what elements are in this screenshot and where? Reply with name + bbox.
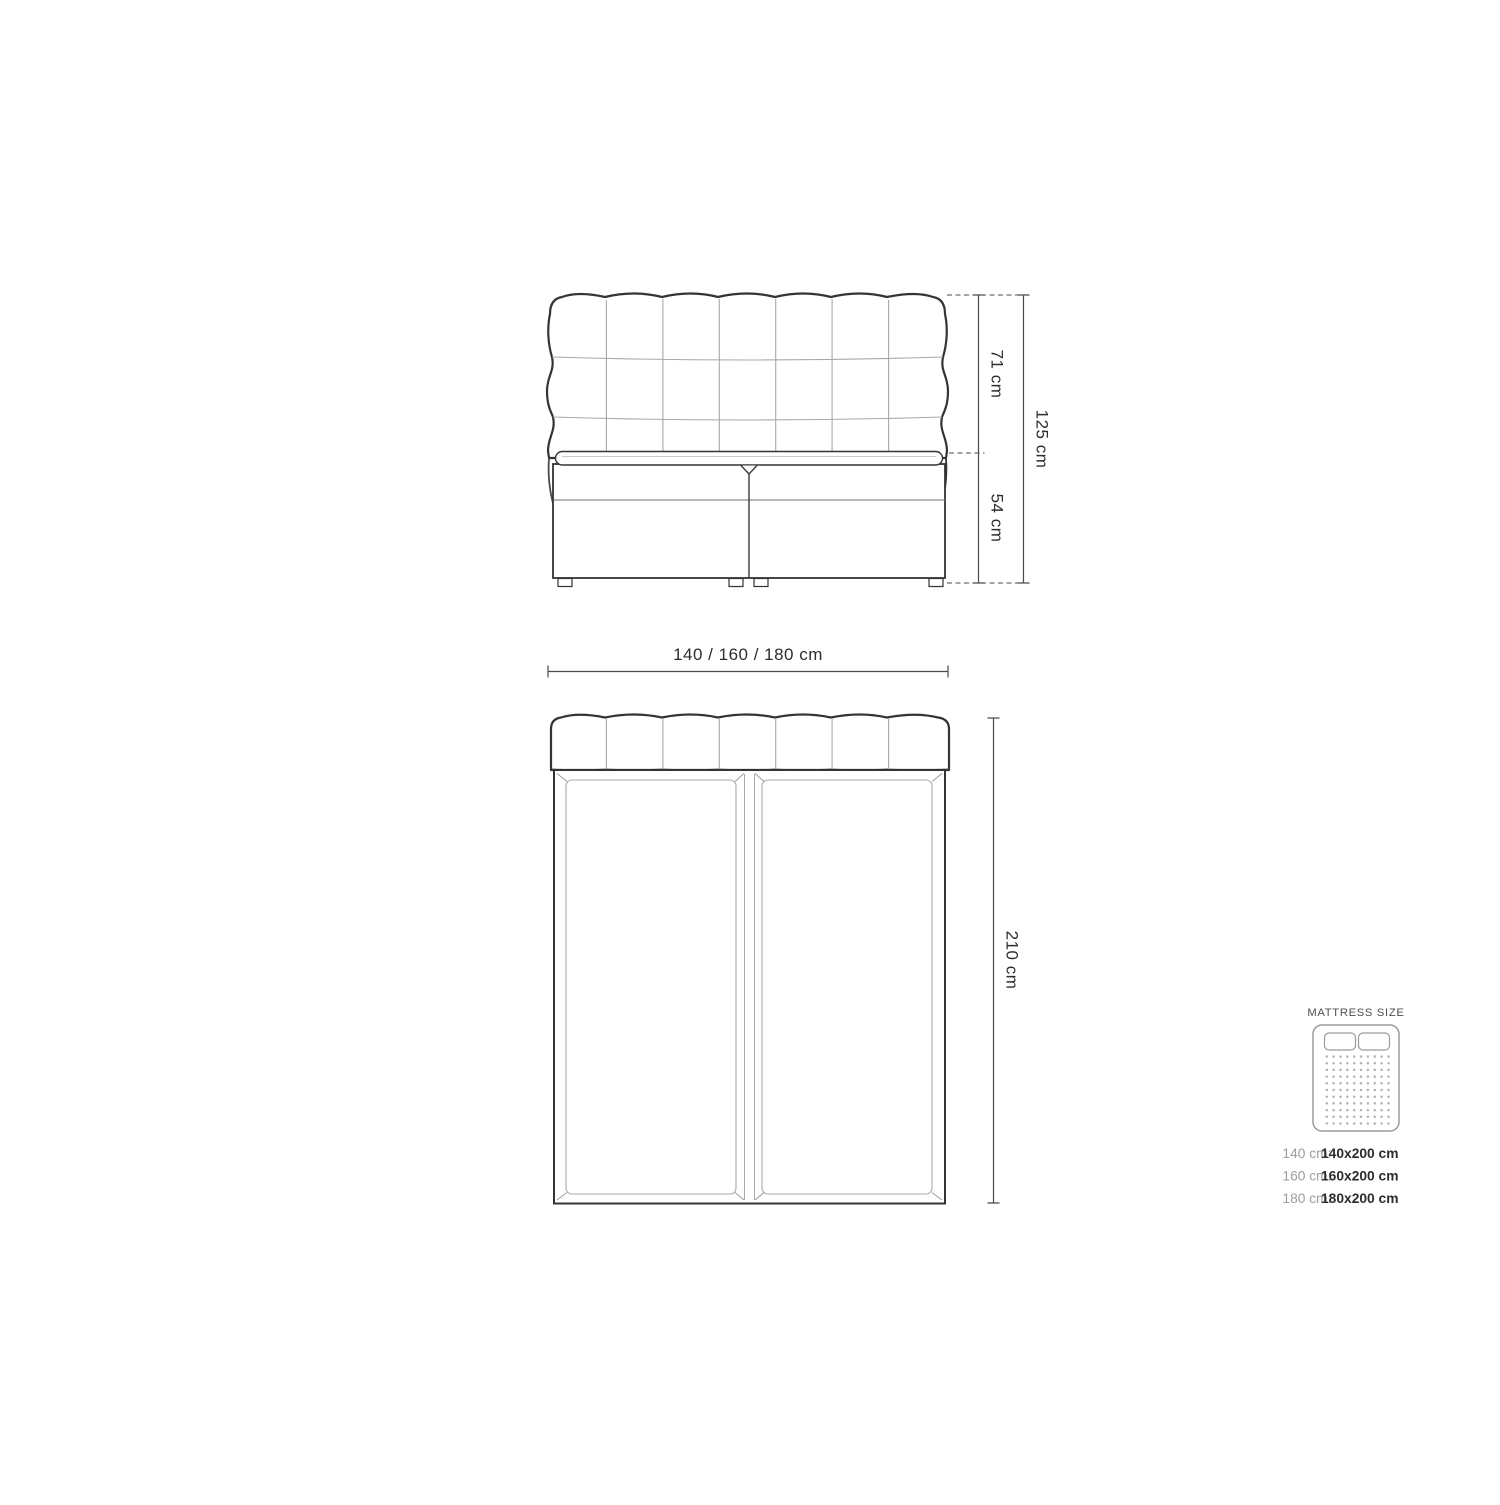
- total-height-label: 125 cm: [1033, 410, 1052, 469]
- front-height-dimensions: 71 cm 54 cm 125 cm: [947, 295, 1052, 583]
- legend-title: MATTRESS SIZE: [1307, 1007, 1404, 1019]
- mattress-icon-pillow-right: [1359, 1033, 1390, 1050]
- base-height-label: 54 cm: [988, 494, 1007, 543]
- legend-size-value: 140x200 cm: [1321, 1146, 1399, 1161]
- mattress-icon-pillow-left: [1325, 1033, 1356, 1050]
- bed-dimension-diagram: 71 cm 54 cm 125 cm 140 / 160 / 180 cm: [0, 0, 1500, 1500]
- bed-feet: [558, 579, 943, 587]
- bed-frame-top: [554, 770, 945, 1204]
- mattress-size-legend: MATTRESS SIZE 140 cm: 140x200 cm 160 cm:…: [1282, 1007, 1404, 1206]
- legend-size-value: 160x200 cm: [1321, 1169, 1399, 1184]
- width-label: 140 / 160 / 180 cm: [673, 645, 823, 664]
- legend-size-value: 180x200 cm: [1321, 1191, 1399, 1206]
- headboard-front-outline: [547, 294, 948, 459]
- front-view: [547, 294, 948, 587]
- length-dimension: 210 cm: [988, 718, 1022, 1203]
- diagram-svg: 71 cm 54 cm 125 cm 140 / 160 / 180 cm: [0, 0, 1500, 1500]
- width-dimension: 140 / 160 / 180 cm: [548, 645, 948, 678]
- mattress-band-front: [556, 452, 943, 466]
- headboard-height-label: 71 cm: [988, 350, 1007, 399]
- legend-size-rows: 140 cm: 140x200 cm 160 cm: 160x200 cm 18…: [1282, 1146, 1398, 1206]
- mattress-icon: [1313, 1025, 1399, 1131]
- headboard-top-outline: [551, 715, 949, 771]
- length-label: 210 cm: [1003, 931, 1022, 990]
- top-view: [551, 715, 949, 1204]
- dimension-extension-dashes: [947, 295, 1026, 583]
